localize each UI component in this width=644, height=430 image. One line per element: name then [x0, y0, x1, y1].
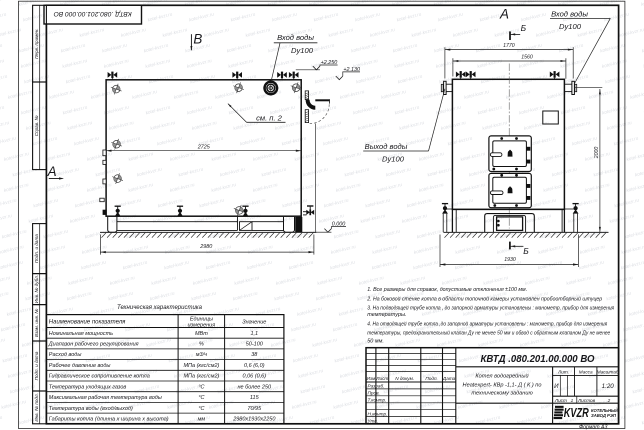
svg-text:Н.контр.: Н.контр. [368, 411, 388, 416]
svg-text:2980х1930х2250: 2980х1930х2250 [232, 417, 276, 423]
svg-text:Дата: Дата [442, 376, 456, 381]
svg-text:МВт: МВт [195, 331, 208, 337]
svg-text:Выход воды: Выход воды [365, 142, 408, 151]
svg-text:Значение: Значение [242, 320, 266, 326]
svg-text:температуры, предохранительный: температуры, предохранительный клапан Ду… [367, 330, 610, 337]
svg-text:Листов: Листов [577, 398, 596, 403]
svg-text:Наименование показателя: Наименование показателя [49, 320, 126, 326]
svg-text:Инв. № подл.: Инв. № подл. [34, 393, 39, 422]
svg-text:Т.контр.: Т.контр. [368, 398, 387, 403]
svg-text:КВТД .080.201.00.000 ВО: КВТД .080.201.00.000 ВО [481, 354, 595, 365]
svg-text:2725: 2725 [197, 144, 211, 150]
svg-text:70/95: 70/95 [247, 406, 262, 412]
svg-text:Габариты котла (длинна х ширин: Габариты котла (длинна х ширина х высота… [49, 417, 169, 423]
svg-text:Техническая характеристика: Техническая характеристика [117, 305, 203, 311]
svg-text:Вход воды: Вход воды [277, 33, 314, 42]
svg-text:38: 38 [251, 352, 258, 358]
svg-text:2: 2 [607, 398, 611, 403]
svg-text:Максимальная рабочая температу: Максимальная рабочая температура воды [49, 395, 162, 401]
svg-text:N докум.: N докум. [395, 376, 414, 381]
svg-text:2. На боковой стенке котла в о: 2. На боковой стенке котла в области топ… [366, 295, 602, 302]
svg-text:м3/ч: м3/ч [196, 352, 207, 358]
svg-text:Dy100: Dy100 [291, 46, 314, 55]
svg-text:50-100: 50-100 [246, 342, 264, 348]
svg-text:Номинальная мощность: Номинальная мощность [49, 331, 113, 337]
svg-text:Формат А3: Формат А3 [579, 424, 607, 430]
svg-text:Масштаб: Масштаб [597, 370, 619, 375]
svg-text:Лист: Лист [375, 376, 388, 381]
svg-text:Изм: Изм [367, 376, 376, 381]
svg-text:Температура воды (вход/выход): Температура воды (вход/выход) [49, 406, 133, 412]
svg-text:Пров.: Пров. [368, 391, 380, 396]
svg-text:1560: 1560 [521, 55, 533, 61]
svg-text:+2.130: +2.130 [343, 67, 360, 73]
svg-text:1,1: 1,1 [250, 331, 258, 337]
svg-text:Температура уходящих газов: Температура уходящих газов [49, 384, 127, 390]
svg-text:°С: °С [198, 395, 204, 401]
svg-text:Диапазон рабочего регулировани: Диапазон рабочего регулирования [48, 342, 139, 348]
svg-text:1. Все размеры для справок, до: 1. Все размеры для справок, допустимые о… [367, 287, 527, 293]
svg-text:мм: мм [198, 417, 206, 423]
svg-text:ЗАВОД РЭП: ЗАВОД РЭП [591, 413, 617, 418]
svg-text:И: И [554, 383, 559, 390]
svg-text:В: В [193, 31, 202, 46]
svg-text:Инв. № дубл.: Инв. № дубл. [34, 275, 39, 303]
svg-text:Рабочее давление воды: Рабочее давление воды [49, 363, 111, 369]
svg-text:А: А [499, 7, 509, 22]
svg-text:Heatexpert- КВр -1,1- Д ( К ): Heatexpert- КВр -1,1- Д ( К ) по [463, 383, 542, 389]
svg-text:измерения: измерения [188, 322, 216, 328]
svg-text:МПа (кгс/см2): МПа (кгс/см2) [183, 363, 219, 369]
svg-text:температуры.: температуры. [367, 312, 406, 318]
svg-text:0.000: 0.000 [332, 222, 346, 228]
svg-text:Подп. и дата: Подп. и дата [34, 351, 39, 380]
svg-text:%: % [199, 342, 204, 348]
svg-text:KVZR: KVZR [564, 405, 590, 420]
svg-text:+2.250: +2.250 [321, 60, 338, 66]
svg-text:техническому заданию: техническому заданию [471, 390, 533, 396]
svg-text:не более 250: не более 250 [238, 384, 273, 390]
svg-text:Б: Б [521, 23, 527, 33]
svg-text:Разраб.: Разраб. [368, 384, 385, 389]
svg-text:Перв. примен.: Перв. примен. [34, 28, 39, 59]
svg-text:1:20: 1:20 [602, 383, 615, 390]
svg-text:°С: °С [198, 406, 204, 412]
svg-text:Лит.: Лит. [557, 370, 569, 375]
svg-text:50 мм.: 50 мм. [367, 339, 384, 345]
svg-text:Вход воды: Вход воды [551, 9, 588, 18]
svg-text:Подп.: Подп. [425, 376, 437, 381]
svg-text:Расход воды: Расход воды [49, 352, 82, 358]
svg-text:1: 1 [571, 398, 574, 403]
svg-text:Справ. №: Справ. № [34, 115, 39, 136]
svg-text:Гидравлическое сопротивление к: Гидравлическое сопротивление котла [49, 374, 150, 380]
svg-text:Масса: Масса [579, 370, 593, 375]
svg-text:0,06 (0,6): 0,06 (0,6) [243, 374, 267, 380]
svg-text:Лист: Лист [554, 398, 567, 403]
svg-text:КОТЕЛЬНЫЙ: КОТЕЛЬНЫЙ [591, 408, 619, 413]
svg-text:Утв.: Утв. [368, 418, 379, 423]
svg-text:2980: 2980 [199, 244, 212, 250]
svg-text:Котел водогрейный: Котел водогрейный [475, 373, 528, 380]
svg-text:0,6 (6,0): 0,6 (6,0) [244, 363, 265, 369]
svg-text:КВТД .080.201.00.000 ВО: КВТД .080.201.00.000 ВО [54, 10, 132, 17]
svg-text:115: 115 [250, 395, 260, 401]
svg-text:°С: °С [198, 384, 204, 390]
svg-text:1930: 1930 [504, 257, 516, 263]
svg-text:4. На отводящей трубе котла ,д: 4. На отводящей трубе котла ,до запорной… [367, 320, 607, 327]
svg-text:Dy100: Dy100 [382, 154, 405, 163]
svg-text:Б: Б [523, 246, 529, 256]
svg-text:МПа (кгс/см2): МПа (кгс/см2) [183, 374, 219, 380]
svg-text:Dy100: Dy100 [559, 22, 582, 31]
svg-text:1770: 1770 [503, 43, 515, 49]
svg-text:Взам. инв. №: Взам. инв. № [34, 309, 39, 337]
svg-text:Подп. и дата: Подп. и дата [34, 234, 39, 263]
svg-text:см. п. 2: см. п. 2 [256, 114, 283, 123]
svg-text:2000: 2000 [594, 147, 600, 160]
svg-text:3. На подводящей трубе котла ,: 3. На подводящей трубе котла , до запорн… [367, 304, 614, 311]
svg-text:А: А [47, 164, 57, 179]
